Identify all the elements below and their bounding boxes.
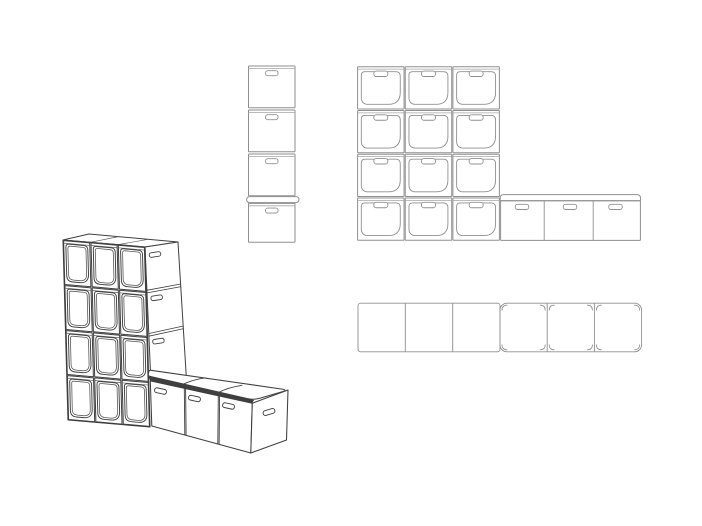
plan-view xyxy=(356,300,646,356)
side-elevation-view xyxy=(246,64,300,246)
isometric-view xyxy=(55,230,305,465)
drawing-canvas xyxy=(0,0,702,526)
front-elevation-view xyxy=(355,62,645,246)
